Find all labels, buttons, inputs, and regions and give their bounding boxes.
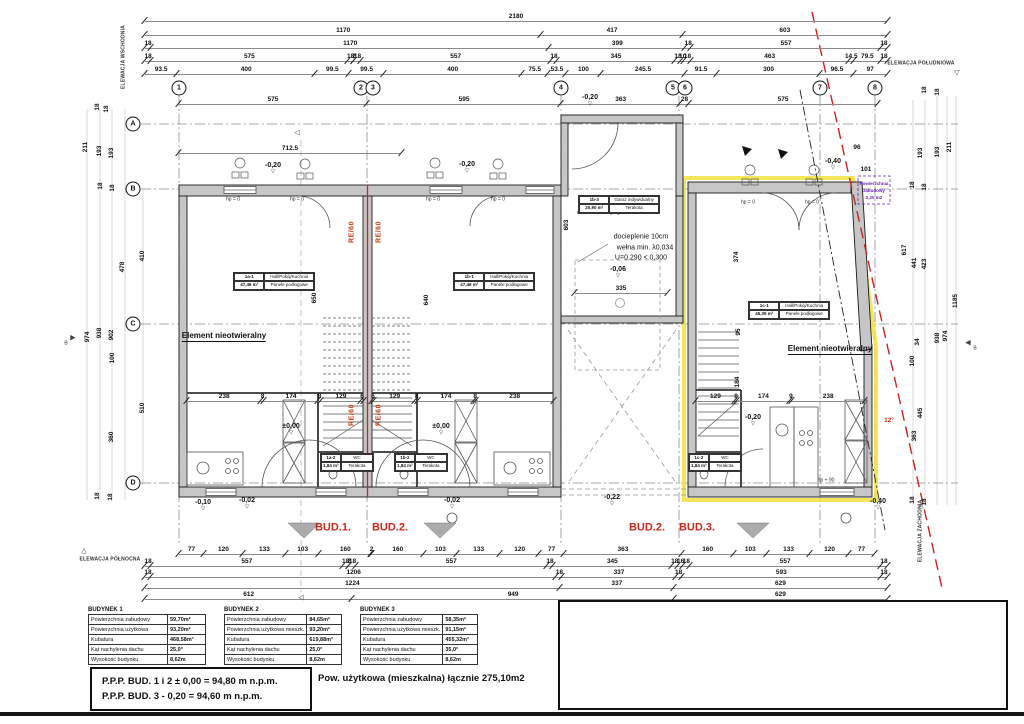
dim-segment: 400 <box>384 65 522 74</box>
annotation: RE/60 <box>349 221 356 243</box>
room-table-cell: Hall/Pokój/Kuchnia <box>779 302 829 310</box>
dim-segment: 18 <box>881 39 887 48</box>
dim-value: 603 <box>779 27 790 34</box>
dim-segment: 18 <box>881 557 887 566</box>
dim-value: 557 <box>241 558 252 565</box>
dim-segment: 174 <box>264 392 318 401</box>
usable-area-total: Pow. użytkowa (mieszkalna) łącznie 275,1… <box>318 673 525 684</box>
dim-value: 18 <box>880 53 887 60</box>
annotation: 617 <box>902 245 909 256</box>
annotation: 211 <box>83 142 90 153</box>
dim-segment: 133 <box>243 545 286 554</box>
room-table-cell: 47,46 m² <box>454 281 484 289</box>
annotation: RE/60 <box>376 221 383 243</box>
dim-value: 77 <box>188 546 195 553</box>
dim-string: 712.5 <box>179 144 401 154</box>
annotation: 938 <box>97 328 104 339</box>
room-table-cell: WC <box>341 454 373 462</box>
grid-bubble-D: D <box>126 476 141 491</box>
annotation: 974 <box>85 332 92 343</box>
summary-value: 619,88m³ <box>307 635 342 645</box>
dim-segment: 557 <box>691 39 881 48</box>
dim-segment: 160 <box>682 545 734 554</box>
dim-segment: 1170 <box>145 26 541 35</box>
dim-segment: 91.5 <box>685 65 717 74</box>
dim-value: 99.5 <box>326 66 339 73</box>
annotation: 18 <box>910 181 917 188</box>
annotation: 18 <box>104 105 111 112</box>
dim-segment: 399 <box>549 39 685 48</box>
summary-label: Powierzchnia użytkowa <box>89 625 168 635</box>
dim-value: 363 <box>615 96 626 103</box>
dim-segment: 595 <box>367 95 561 104</box>
dim-segment: 557 <box>151 557 342 566</box>
dim-segment: 300 <box>717 65 820 74</box>
dim-segment: 103 <box>734 545 767 554</box>
dim-value: 463 <box>764 53 775 60</box>
annotation: 360 <box>109 432 116 443</box>
dim-value: 417 <box>607 27 618 34</box>
dim-segment: 238 <box>187 392 261 401</box>
summary-label: Wysokość budynku <box>89 655 168 665</box>
dim-value: 1206 <box>346 569 360 576</box>
summary-label: Powierzchnia użytkowa mieszk. <box>225 625 307 635</box>
annotation: ◁ <box>294 130 299 137</box>
dim-value: 337 <box>611 580 622 587</box>
room-table-1a-2: 1a-2WC1,84 m²Terakota <box>320 453 374 472</box>
dim-segment: 575 <box>179 95 367 104</box>
room-table-cell: Garaż indywidualny <box>609 196 659 204</box>
annotation: hp + 90 <box>818 479 835 484</box>
grid-bubble-3: 3 <box>366 81 381 96</box>
dim-segment: 603 <box>683 26 887 35</box>
dim-value: 99.5 <box>360 66 373 73</box>
annotation: 193 <box>935 147 942 158</box>
dim-segment: 245.5 <box>601 65 686 74</box>
room-table-cell: 1a-2 <box>321 454 341 462</box>
dim-value: 103 <box>435 546 446 553</box>
summary-table: Powierzchnia zabudowy84,65m²Powierzchnia… <box>224 614 342 665</box>
annotation: B <box>64 342 67 347</box>
dim-value: 93.5 <box>155 66 168 73</box>
annotation: zabudowy <box>863 189 885 194</box>
dim-string: 2180 <box>145 12 887 22</box>
annotation: -0,20 <box>265 162 281 174</box>
dim-segment: 238 <box>476 392 553 401</box>
direction-arrows <box>742 146 788 159</box>
dim-value: 238 <box>219 393 230 400</box>
annotation: 18 <box>922 86 929 93</box>
dim-segment: 160 <box>372 545 424 554</box>
annotation: 938 <box>935 333 942 344</box>
dim-segment: 2180 <box>145 12 887 21</box>
summary-value: 25,0° <box>307 645 342 655</box>
dim-segment: 77 <box>539 545 564 554</box>
annotation: wełna min. λ0,034 <box>617 245 673 252</box>
grid-bubble-1: 1 <box>172 81 187 96</box>
annotation: 18 <box>110 184 117 191</box>
summary-table-budynek-1: BUDYNEK 1Powierzchnia zabudowy59,70m²Pow… <box>88 607 206 665</box>
room-table-cell: 20,90 m² <box>579 204 609 212</box>
dim-segment: 400 <box>177 65 315 74</box>
summary-value: 25,0° <box>168 645 206 655</box>
annotation: ELEWACJA ZACHODNIA <box>919 500 924 563</box>
room-table-cell: 1,84 m² <box>321 462 341 470</box>
annotation: 363 <box>912 431 919 442</box>
dim-value: 1170 <box>343 40 357 47</box>
dim-value: 629 <box>775 591 786 598</box>
dim-segment: 174 <box>737 392 789 401</box>
dim-value: 2180 <box>509 13 523 20</box>
annotation: -0,02 <box>444 497 460 509</box>
annotation: 18 <box>935 88 942 95</box>
level-reference-box: P.P.P. BUD. 1 i 2 ± 0,00 = 94,80 m n.p.m… <box>90 667 312 711</box>
dim-string: 1811703991855718 <box>145 39 887 49</box>
dim-value: 133 <box>783 546 794 553</box>
dim-value: 53.5 <box>551 66 564 73</box>
annotation: 445 <box>918 408 925 419</box>
dim-segment: 612 <box>145 590 352 599</box>
annotation: B <box>973 347 976 352</box>
dim-string: 238817481296 <box>187 392 363 402</box>
summary-table-budynek-2: BUDYNEK 2Powierzchnia zabudowy84,65m²Pow… <box>224 607 342 665</box>
dim-value: 612 <box>243 591 254 598</box>
annotation: ELEWACJA POŁUDNIOWA <box>887 62 954 67</box>
dim-segment: 593 <box>682 568 881 577</box>
dim-value: 174 <box>286 393 297 400</box>
dim-value: 120 <box>514 546 525 553</box>
dim-value: 345 <box>607 558 618 565</box>
summary-label: Powierzchnia zabudowy <box>89 615 168 625</box>
title-block-empty <box>558 600 1008 710</box>
dim-value: 18 <box>880 40 887 47</box>
room-table-cell: Panele podłogowe <box>264 281 314 289</box>
annotation: 650 <box>312 293 319 304</box>
annotation: ±0,00 <box>282 423 299 435</box>
dim-value: 174 <box>441 393 452 400</box>
sheet-bottom-edge <box>0 712 1024 716</box>
annotation: hp = 0 <box>226 198 240 203</box>
room-table-cell: 1a-1 <box>234 273 264 281</box>
annotation: 423 <box>922 259 929 270</box>
annotation: -0,20 <box>745 414 761 426</box>
annotation: -0,20 <box>582 94 598 106</box>
dim-value: 949 <box>508 591 519 598</box>
summary-value: 93,20m² <box>307 625 342 635</box>
dim-value: 160 <box>392 546 403 553</box>
annotation: ▶ <box>70 335 75 342</box>
summary-table-title: BUDYNEK 1 <box>88 607 206 613</box>
summary-value: 93,20m² <box>168 625 206 635</box>
room-table-cell: 1b-3 <box>579 196 609 204</box>
annotation: 18 <box>910 496 917 503</box>
summary-value: 35,0° <box>443 645 478 655</box>
dim-segment: 345 <box>553 557 672 566</box>
dim-segment: 18 <box>881 568 887 577</box>
summary-value: 58,35m² <box>443 615 478 625</box>
annotation: hp = 0 <box>491 198 505 203</box>
annotation: -0,22 <box>604 494 620 506</box>
dim-segment: 129 <box>321 392 361 401</box>
dim-value: 557 <box>446 558 457 565</box>
dim-value: 103 <box>745 546 756 553</box>
annotation: hp = 0 <box>741 201 755 206</box>
dim-value: 100 <box>578 66 589 73</box>
dim-value: 629 <box>775 580 786 587</box>
annotation: 184 <box>735 377 742 388</box>
annotation: -0,10 <box>195 499 211 511</box>
dim-value: 129 <box>389 393 400 400</box>
summary-table: Powierzchnia zabudowy58,35m²Powierzchnia… <box>360 614 478 665</box>
dim-string: 18575182185571834518101846314.579.518 <box>145 52 887 62</box>
dim-value: 345 <box>611 53 622 60</box>
dim-segment: 557 <box>356 557 547 566</box>
annotation: Element nieotwieralny <box>788 345 872 355</box>
annotation: 100 <box>110 353 117 364</box>
dim-value: 400 <box>447 66 458 73</box>
summary-label: Kubatura <box>225 635 307 645</box>
dim-value: 337 <box>614 569 625 576</box>
dim-segment: 949 <box>352 590 674 599</box>
dim-segment: 712.5 <box>179 144 401 153</box>
grid-bubble-8: 8 <box>868 81 883 96</box>
room-table-cell: 1b-2 <box>395 454 415 462</box>
summary-label: Wysokość budynku <box>225 655 307 665</box>
dim-string: 612949629 <box>145 590 887 600</box>
grid-bubble-C: C <box>126 317 141 332</box>
dim-value: 1224 <box>345 580 359 587</box>
dim-value: 575 <box>778 96 789 103</box>
annotation: 193 <box>109 148 116 159</box>
grid-bubble-6: 6 <box>678 81 693 96</box>
summary-value: 455,32m³ <box>443 635 478 645</box>
dim-value: 18 <box>880 558 887 565</box>
dim-segment: 1170 <box>151 39 549 48</box>
dim-string: 335 <box>575 284 667 294</box>
dim-value: 160 <box>340 546 351 553</box>
summary-label: Kąt nachylenia dachu <box>225 645 307 655</box>
room-table-cell: 1,84 m² <box>689 462 709 470</box>
summary-table-title: BUDYNEK 3 <box>360 607 478 613</box>
dim-value: 1170 <box>336 27 350 34</box>
annotation: RE/60 <box>349 404 356 426</box>
dim-value: 129 <box>336 393 347 400</box>
dim-value: 97 <box>867 66 874 73</box>
dim-value: 557 <box>781 40 792 47</box>
dim-segment: 557 <box>361 52 551 61</box>
dim-segment: 120 <box>810 545 849 554</box>
annotation: 96 <box>853 145 860 152</box>
room-table-cell: Panele podłogowe <box>484 281 534 289</box>
dim-value: 400 <box>241 66 252 73</box>
dim-segment: 363 <box>561 95 680 104</box>
dim-segment: 345 <box>557 52 675 61</box>
dim-value: 18 <box>880 569 887 576</box>
annotation: △ <box>81 548 86 555</box>
room-table-cell: Hall/Pokój/Kuchnia <box>264 273 314 281</box>
summary-label: Kubatura <box>89 635 168 645</box>
dim-segment: 77 <box>849 545 874 554</box>
dim-segment: 1224 <box>145 579 560 588</box>
summary-table-budynek-3: BUDYNEK 3Powierzchnia zabudowy58,35m²Pow… <box>360 607 478 665</box>
fixtures <box>187 400 867 523</box>
annotation: ◁ <box>298 595 303 602</box>
dim-segment: 129 <box>374 392 415 401</box>
room-table-cell: Terakota <box>341 462 373 470</box>
dim-segment: 174 <box>418 392 474 401</box>
dim-string: 18557182185571834518161855718 <box>145 557 887 567</box>
annotation: hp = 0 <box>805 201 819 206</box>
dim-segment: 120 <box>204 545 243 554</box>
annotation: 410 <box>140 251 147 262</box>
dim-value: 174 <box>758 393 769 400</box>
dim-segment: 53.5 <box>548 65 566 74</box>
dim-value: 133 <box>259 546 270 553</box>
partition-walls <box>187 390 741 487</box>
ppp-line-1: P.P.P. BUD. 1 i 2 ± 0,00 = 94,80 m n.p.m… <box>102 674 310 689</box>
summary-value: 468,58m³ <box>168 635 206 645</box>
dim-segment: 129 <box>696 392 735 401</box>
room-table-cell: 47,46 m² <box>234 281 264 289</box>
courtyard-dashed <box>561 260 688 495</box>
annotation: 640 <box>424 295 431 306</box>
grid-bubble-A: A <box>126 117 141 132</box>
annotation: 18 <box>98 182 105 189</box>
annotation: 374 <box>734 252 741 263</box>
annotation: 18 <box>95 103 102 110</box>
grid-bubble-B: B <box>126 182 141 197</box>
dim-segment: 629 <box>674 579 887 588</box>
dim-segment: 99.5 <box>349 65 383 74</box>
annotation: 18 <box>922 183 929 190</box>
room-table-cell: Terakota <box>609 204 659 212</box>
annotation: RE/60 <box>376 404 383 426</box>
dim-string: 93.540099.599.540075.553.5100245.591.530… <box>145 65 887 75</box>
annotation: 18 <box>108 493 115 500</box>
dim-value: 120 <box>824 546 835 553</box>
dim-segment: 96.5 <box>820 65 853 74</box>
dim-segment: 77 <box>179 545 204 554</box>
window-symbols <box>232 158 822 185</box>
annotation: 95 <box>736 328 743 335</box>
room-table-cell: Terakota <box>709 462 741 470</box>
annotation: Powierzchnia <box>860 182 889 187</box>
dim-value: 238 <box>823 393 834 400</box>
annotation: -0,40 <box>825 158 841 170</box>
dim-segment: 557 <box>690 557 881 566</box>
summary-value: 59,70m² <box>168 615 206 625</box>
annotation: U=0,290 < 0,300 <box>615 255 667 262</box>
annotation: 193 <box>918 148 925 159</box>
annotation: 101 <box>861 167 872 174</box>
annotation: hp = 0 <box>290 198 304 203</box>
dim-value: 77 <box>548 546 555 553</box>
dim-segment: 363 <box>564 545 682 554</box>
summary-label: Kubatura <box>361 635 443 645</box>
dim-segment: 99.5 <box>315 65 349 74</box>
annotation: 1185 <box>953 294 960 308</box>
dim-value: 129 <box>710 393 721 400</box>
summary-value: 84,65m² <box>307 615 342 625</box>
summary-label: Powierzchnia zabudowy <box>361 615 443 625</box>
dim-string: 12981749238 <box>696 392 864 402</box>
dim-segment: 100 <box>566 65 600 74</box>
floor-plan-sheet: 2180117041760318117039918557181857518218… <box>0 0 1024 724</box>
room-table-cell: 1c-2 <box>689 454 709 462</box>
summary-label: Wysokość budynku <box>361 655 443 665</box>
summary-label: Kąt nachylenia dachu <box>361 645 443 655</box>
dim-value: 103 <box>297 546 308 553</box>
dim-segment: 160 <box>319 545 371 554</box>
dim-value: 91.5 <box>695 66 708 73</box>
annotation: ◀ <box>965 340 970 347</box>
annotation: 100 <box>910 356 917 367</box>
annotation: ▽ <box>954 70 959 77</box>
summary-label: Powierzchnia użytkowa mieszk. <box>361 625 443 635</box>
dim-value: 28 <box>681 96 688 103</box>
room-table-cell: Hall/Pokój/Kuchnia <box>484 273 534 281</box>
dim-segment: 97 <box>854 65 887 74</box>
annotation: Element nieotwieralny <box>182 332 266 342</box>
dim-string: 1224337629 <box>145 579 887 589</box>
dim-segment: 337 <box>560 579 674 588</box>
annotation: 441 <box>912 258 919 269</box>
dim-value: 6 <box>360 393 364 400</box>
dim-value: 96.5 <box>831 66 844 73</box>
room-table-cell: WC <box>709 454 741 462</box>
annotation: ELEWACJA PÓŁNOCNA <box>80 558 141 563</box>
room-table-1c-2: 1c-2WC1,84 m²Terakota <box>688 453 742 472</box>
annotation: BUD.2. <box>629 523 665 534</box>
dim-string: 1170417603 <box>145 26 887 36</box>
room-table-1c-1: 1c-1Hall/Pokój/Kuchnia45,35 m²Panele pod… <box>748 301 830 320</box>
annotation: 18 <box>95 492 102 499</box>
room-table-1b-1: 1b-1Hall/Pokój/Kuchnia47,46 m²Panele pod… <box>453 272 535 291</box>
dim-segment: 629 <box>674 590 887 599</box>
dim-value: 79.5 <box>861 53 874 60</box>
dim-segment: 79.5 <box>854 52 881 61</box>
dim-segment: 417 <box>541 26 682 35</box>
annotation: BUD.2. <box>372 523 408 534</box>
dim-segment: 103 <box>286 545 319 554</box>
room-table-cell: 1,84 m² <box>395 462 415 470</box>
dim-value: 335 <box>616 285 627 292</box>
room-table-1a-1: 1a-1Hall/Pokój/Kuchnia47,46 m²Panele pod… <box>233 272 315 291</box>
dim-segment: 335 <box>575 284 667 293</box>
annotation: BUD.3. <box>679 523 715 534</box>
annotation: 603 <box>564 220 571 231</box>
annotation: 478 <box>120 262 127 273</box>
room-table-1b-2: 1b-2WC1,84 m²Terakota <box>394 453 448 472</box>
room-table-cell: Terakota <box>415 462 447 470</box>
room-table-cell: 1b-1 <box>454 273 484 281</box>
annotation: ELEWACJA WSCHODNIA <box>122 25 127 89</box>
dim-segment: 6 <box>361 392 363 401</box>
room-table-cell: 45,35 m² <box>749 310 779 318</box>
dim-segment: 93.5 <box>145 65 177 74</box>
dim-segment: 133 <box>457 545 500 554</box>
dim-string: 181206183371859318 <box>145 568 887 578</box>
summary-value: 8,62m <box>168 655 206 665</box>
annotation: 902 <box>109 330 116 341</box>
dim-value: 557 <box>780 558 791 565</box>
annotation: docieplenie 10cm <box>614 234 668 241</box>
dim-segment: 337 <box>562 568 675 577</box>
dim-value: 575 <box>268 96 279 103</box>
summary-label: Powierzchnia zabudowy <box>225 615 307 625</box>
dim-segment: 1206 <box>151 568 556 577</box>
dim-segment: 103 <box>424 545 457 554</box>
